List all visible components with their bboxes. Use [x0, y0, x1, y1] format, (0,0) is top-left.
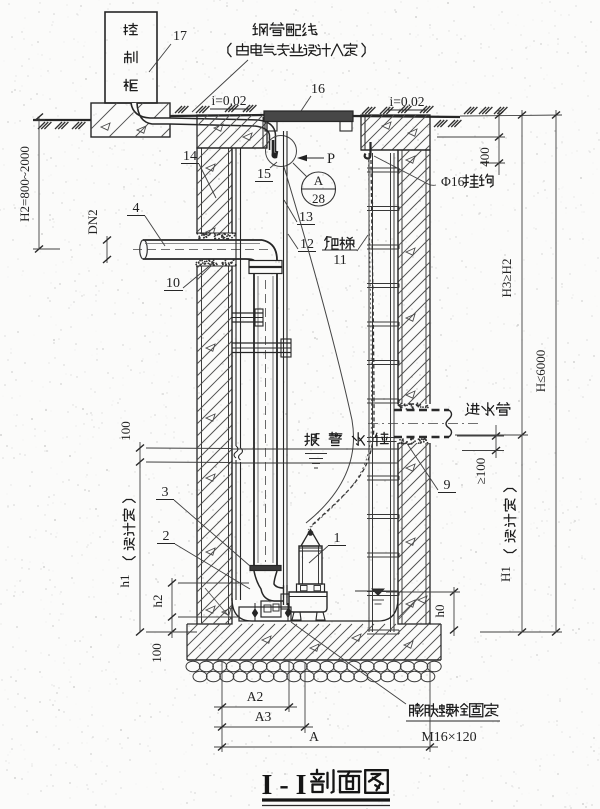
svg-text:400: 400: [477, 147, 492, 167]
svg-text:14: 14: [183, 149, 197, 164]
svg-text:i=0.02: i=0.02: [212, 93, 247, 108]
svg-text:13: 13: [299, 210, 313, 225]
svg-text:H3≥H2: H3≥H2: [499, 259, 514, 298]
svg-text:A3: A3: [255, 709, 272, 724]
svg-text:100: 100: [118, 421, 133, 441]
svg-text:16: 16: [311, 82, 325, 97]
svg-text:H2=800~2000: H2=800~2000: [17, 146, 32, 222]
svg-text:A: A: [314, 173, 324, 188]
svg-text:17: 17: [173, 29, 187, 44]
svg-text:≥100: ≥100: [473, 458, 488, 485]
svg-text:9: 9: [444, 478, 451, 493]
svg-text:h2: h2: [150, 595, 165, 608]
svg-text:11: 11: [333, 253, 346, 268]
svg-text:15: 15: [257, 167, 271, 182]
svg-text:10: 10: [166, 276, 180, 291]
svg-text:DN2: DN2: [85, 209, 100, 234]
svg-text:H1: H1: [498, 566, 513, 582]
svg-text:A2: A2: [247, 689, 264, 704]
svg-text:28: 28: [312, 191, 325, 206]
svg-text:i=0.02: i=0.02: [390, 94, 425, 109]
svg-text:Φ16: Φ16: [441, 174, 465, 189]
svg-text:P: P: [327, 151, 335, 167]
svg-text:A: A: [309, 729, 319, 744]
svg-text:100: 100: [149, 643, 164, 663]
svg-text:h1: h1: [117, 575, 132, 588]
svg-text:1: 1: [334, 531, 341, 546]
svg-text:3: 3: [162, 485, 169, 500]
svg-text:2: 2: [163, 529, 170, 544]
svg-text:H≤6000: H≤6000: [533, 350, 548, 393]
svg-text:4: 4: [133, 201, 140, 216]
svg-text:I - I: I - I: [261, 770, 306, 801]
svg-text:h0: h0: [432, 605, 447, 618]
